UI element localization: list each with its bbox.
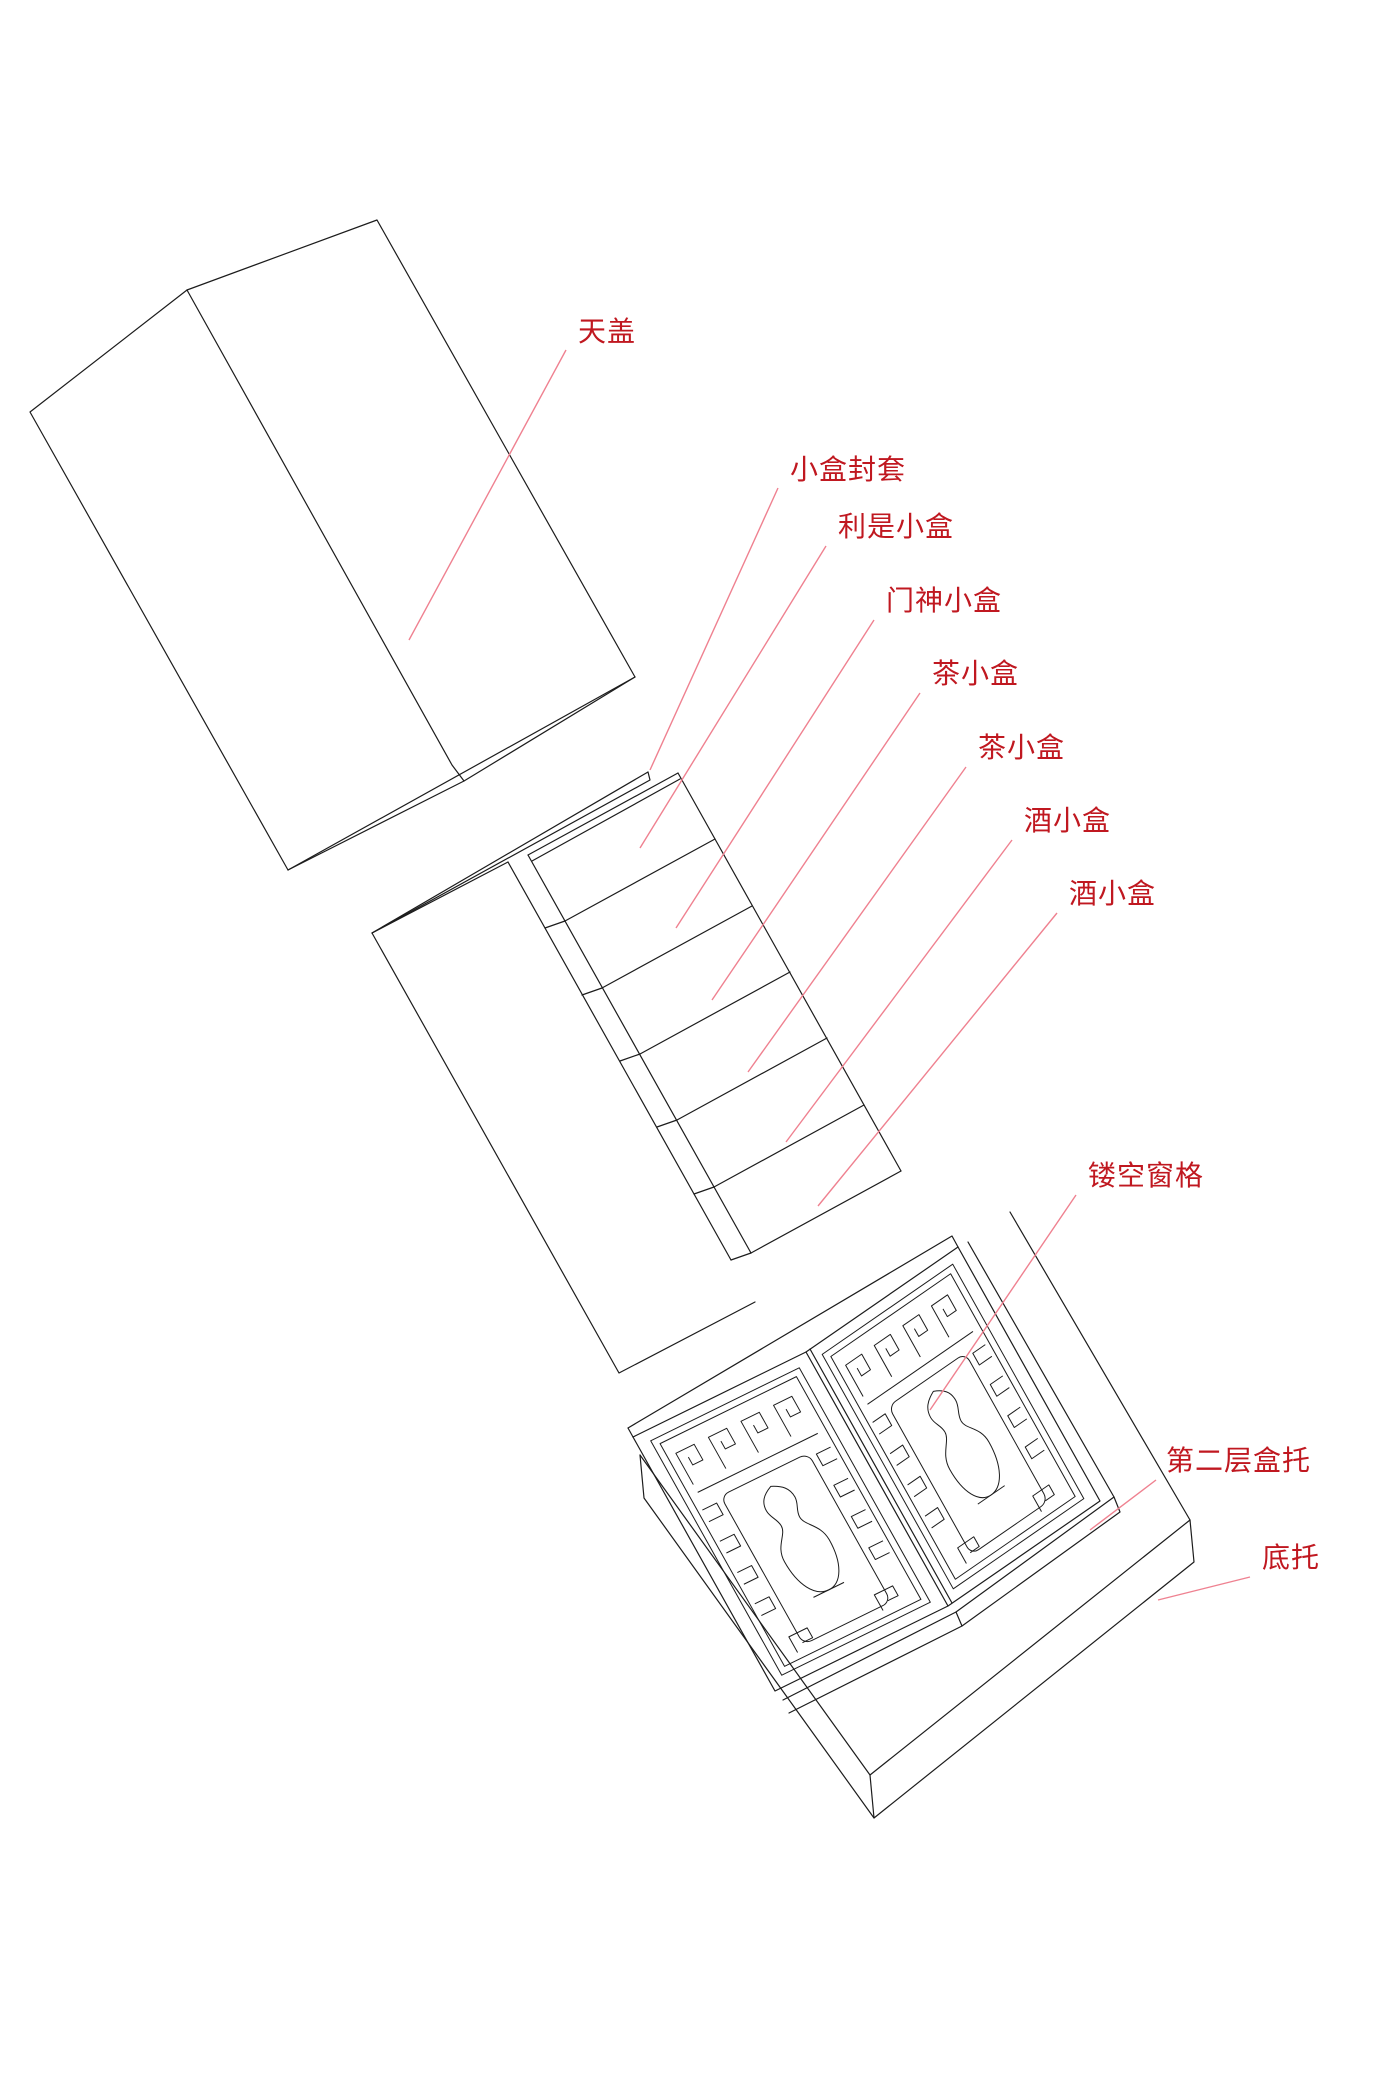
part-label-menshen-small-box: 门神小盒 [886, 585, 1002, 616]
lattice-box-drawing [628, 1236, 1100, 1691]
part-label-wine-small-box-1: 酒小盒 [1024, 805, 1111, 836]
leader-line-tea-small-box-2 [748, 767, 966, 1072]
exploded-view-drawing: 天盖小盒封套利是小盒门神小盒茶小盒茶小盒酒小盒酒小盒镂空窗格第二层盒托底托 [0, 0, 1400, 2099]
leader-line-second-layer-tray [1090, 1480, 1156, 1530]
leader-line-top-lid [409, 350, 566, 640]
part-label-wine-small-box-2: 酒小盒 [1069, 878, 1156, 909]
part-label-bottom-tray: 底托 [1262, 1542, 1320, 1573]
part-label-second-layer-tray: 第二层盒托 [1166, 1445, 1311, 1476]
leader-line-wine-small-box-2 [818, 913, 1057, 1206]
leader-line-lishi-small-box [640, 546, 826, 848]
part-label-lattice-window: 镂空窗格 [1088, 1160, 1204, 1191]
sleeve-and-small-boxes-drawing [372, 772, 901, 1373]
leader-lines [409, 350, 1250, 1600]
leader-line-tea-small-box-1 [712, 693, 920, 1000]
part-label-tea-small-box-1: 茶小盒 [932, 658, 1019, 689]
part-labels: 天盖小盒封套利是小盒门神小盒茶小盒茶小盒酒小盒酒小盒镂空窗格第二层盒托底托 [578, 316, 1320, 1573]
part-label-small-box-sleeve: 小盒封套 [790, 454, 906, 485]
diagram-page: { "diagram": { "description_labels_langu… [0, 0, 1400, 2099]
part-label-lishi-small-box: 利是小盒 [838, 511, 954, 542]
leader-line-menshen-small-box [676, 620, 874, 928]
top-lid-drawing [30, 220, 635, 870]
part-label-tea-small-box-2: 茶小盒 [978, 732, 1065, 763]
part-label-top-lid: 天盖 [578, 316, 636, 347]
leader-line-wine-small-box-1 [786, 840, 1012, 1142]
